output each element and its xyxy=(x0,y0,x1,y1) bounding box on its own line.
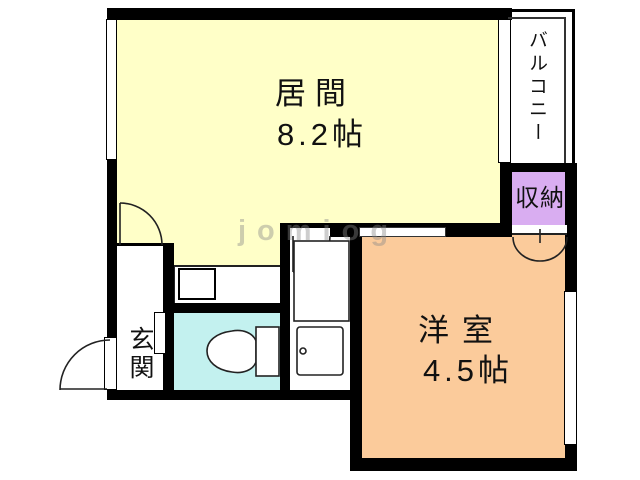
watermark-text: jomiog xyxy=(238,215,399,248)
room-western-size: 4.5帖 xyxy=(368,355,568,388)
room-living-name: 居間 xyxy=(215,78,415,111)
toilet-door xyxy=(154,312,166,354)
wall-top xyxy=(107,8,512,20)
opening-storage-door xyxy=(512,225,567,233)
balcony-label: バルコニー xyxy=(527,30,546,170)
wall-toilet-right xyxy=(280,223,290,390)
storage-door-line xyxy=(512,233,567,235)
wall-bottom-right xyxy=(350,458,577,471)
window-living-left xyxy=(106,19,117,160)
floorplan-canvas: 居間 8.2帖 洋室 4.5帖 収納 バルコニー 玄関 jomiog xyxy=(0,0,640,480)
wall-bath-right xyxy=(350,223,362,471)
wall-hall-threshold xyxy=(107,243,165,246)
entrance-door-arc xyxy=(60,340,110,390)
bathroom-floor xyxy=(290,237,350,388)
room-living-size: 8.2帖 xyxy=(222,119,422,152)
wall-toilet-top xyxy=(163,303,290,313)
wall-left xyxy=(107,158,117,340)
toilet-room-floor xyxy=(172,313,280,390)
entrance-door-frame xyxy=(104,337,117,390)
entrance-label: 玄関 xyxy=(127,326,152,396)
stove-counter-unit xyxy=(178,268,216,300)
room-storage-label: 収納 xyxy=(490,186,590,211)
room-western-name: 洋室 xyxy=(362,315,562,348)
